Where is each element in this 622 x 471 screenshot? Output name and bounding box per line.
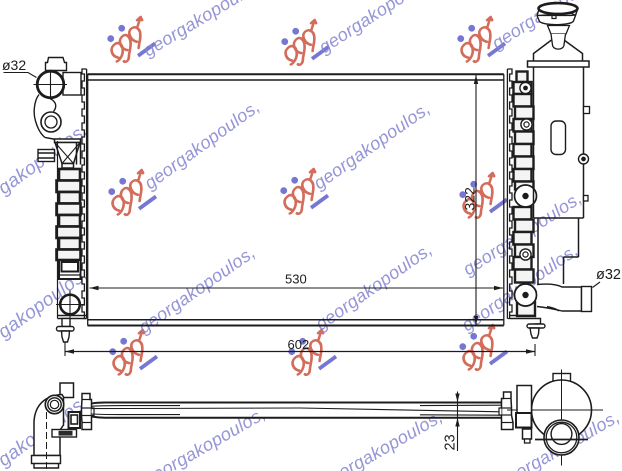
svg-text:530: 530 [285, 272, 307, 287]
svg-text:ø32: ø32 [596, 267, 621, 283]
svg-text:ø32: ø32 [2, 57, 26, 73]
svg-text:georgakopoulos,: georgakopoulos, [310, 98, 434, 193]
svg-text:georgakopoulos,: georgakopoulos, [315, 0, 441, 57]
svg-text:georgakopoulos,: georgakopoulos, [140, 403, 269, 471]
svg-text:322: 322 [462, 187, 478, 211]
svg-text:georgakopoulos,: georgakopoulos, [135, 242, 259, 337]
svg-text:23: 23 [443, 434, 459, 450]
svg-text:georgakopoulos,: georgakopoulos, [140, 0, 268, 60]
svg-text:georgakopoulos,: georgakopoulos, [317, 406, 446, 471]
svg-text:602: 602 [288, 337, 310, 352]
svg-text:georgakopoulos,: georgakopoulos, [141, 96, 264, 193]
